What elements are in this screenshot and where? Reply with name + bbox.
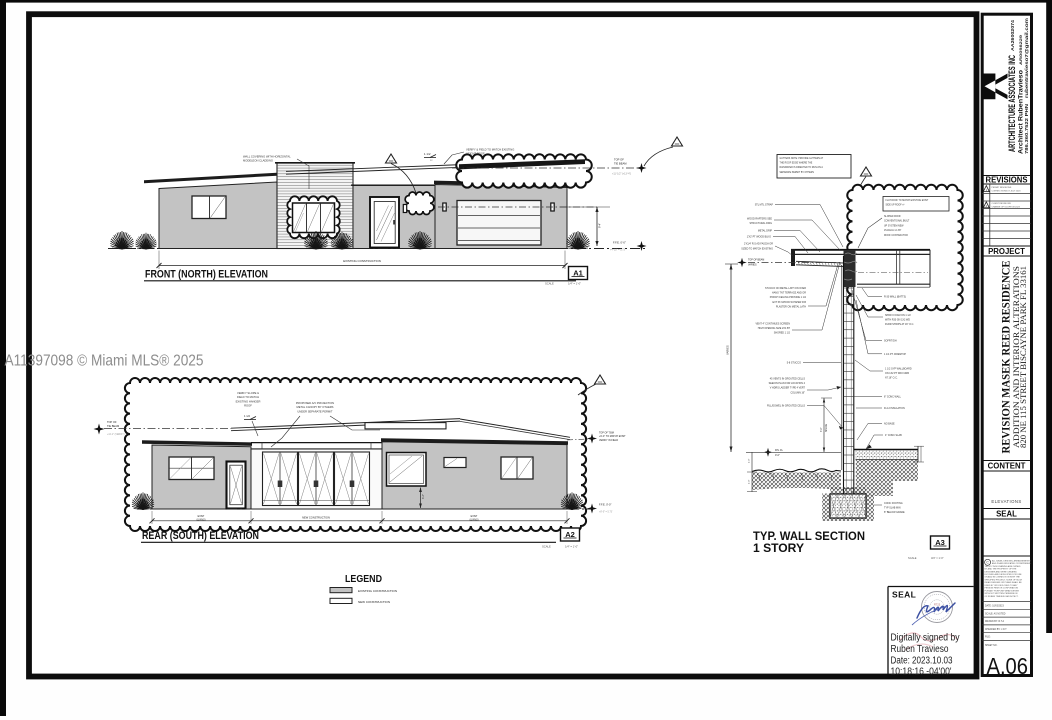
svg-text:ROOF: ROOF	[244, 404, 252, 408]
svg-text:SPLICE: SPLICE	[826, 423, 828, 432]
svg-text:1'-0": 1'-0"	[749, 458, 751, 463]
svg-text:BY AND THE PROPERTY OF THE: BY AND THE PROPERTY OF THE	[985, 568, 1018, 571]
svg-text:CHANGE OF SCOPE 08 2023: CHANGE OF SCOPE 08 2023	[992, 206, 1021, 209]
svg-text:METAL CANOPY BY OTHERS: METAL CANOPY BY OTHERS	[297, 405, 334, 409]
svg-text:RAINWATER IS DIRECTED TO RUN-O: RAINWATER IS DIRECTED TO RUN-ON A	[780, 166, 824, 169]
svg-text:(LIVING): (LIVING)	[196, 519, 205, 521]
svg-text:Digitally signed by: Digitally signed by	[891, 633, 960, 644]
svg-text:METAL DRIP: METAL DRIP	[758, 230, 772, 233]
svg-text:TIE BEAM: TIE BEAM	[614, 162, 627, 166]
svg-text:UNDER SEPARATE PERMIT: UNDER SEPARATE PERMIT	[297, 409, 332, 413]
svg-text:CHECKED BY: J.O.T: CHECKED BY: J.O.T	[985, 629, 1007, 631]
svg-text:WITH R30 ON 1X2 WD: WITH R30 ON 1X2 WD	[885, 319, 910, 322]
svg-text:HIGH OPENING SIZE 2X4 BT: HIGH OPENING SIZE 2X4 BT	[758, 327, 791, 330]
svg-text:GUTTERS NOTE: PROVIDE GUTTERS: GUTTERS NOTE: PROVIDE GUTTERS AT	[780, 157, 824, 160]
svg-text:CONC FOOTING: CONC FOOTING	[884, 502, 903, 505]
svg-text:VARIES: VARIES	[726, 345, 730, 355]
svg-text:WITHOUT WRITTEN PERMISSION: WITHOUT WRITTEN PERMISSION	[985, 593, 1018, 595]
svg-text:(LIVING): (LIVING)	[469, 519, 478, 521]
svg-text:NEW CONSTRUCTION: NEW CONSTRUCTION	[358, 600, 390, 604]
svg-text:A2: A2	[565, 530, 575, 539]
svg-text:ARTCHITECTURE ASSOCIATES INC: ARTCHITECTURE ASSOCIATES INC	[1007, 55, 1017, 152]
svg-text:STL MTL STRAP: STL MTL STRAP	[755, 204, 774, 207]
svg-text:FILL/DOWEL IN GROUTED CELLS: FILL/DOWEL IN GROUTED CELLS	[767, 405, 805, 408]
svg-text:USED BY OR DISCLOSED TO ANY: USED BY OR DISCLOSED TO ANY	[985, 584, 1019, 587]
svg-text:EXIST: EXIST	[471, 516, 478, 518]
svg-text:TOP OF: TOP OF	[614, 158, 624, 162]
svg-text:NO BASE: NO BASE	[884, 423, 895, 426]
svg-text:TOP OF T.BM: TOP OF T.BM	[599, 432, 614, 435]
svg-text:RT25: RT25	[934, 603, 941, 607]
svg-text:FRONT (NORTH) ELEVATION: FRONT (NORTH) ELEVATION	[145, 269, 268, 281]
svg-text:A.06: A.06	[987, 653, 1029, 679]
svg-text:3'-0": 3'-0"	[821, 427, 823, 432]
svg-text:820 NE 115 STREET BISCAYNE PAR: 820 NE 115 STREET BISCAYNE PARK FL 33161	[1019, 266, 1028, 448]
svg-text:1/4" = 1'-0": 1/4" = 1'-0"	[565, 545, 578, 549]
svg-text:10:18:16 -04'00': 10:18:16 -04'00'	[891, 667, 952, 678]
svg-text:SEAL: SEAL	[892, 590, 916, 600]
svg-text:REVISION MASEK REED RESIDENCE: REVISION MASEK REED RESIDENCE	[1001, 260, 1013, 453]
svg-text:A3: A3	[935, 538, 945, 547]
svg-text:VERIFY IN FIELD: VERIFY IN FIELD	[599, 439, 618, 442]
svg-text:FIN. FL: FIN. FL	[775, 449, 784, 452]
svg-text:TOP OF BEAM: TOP OF BEAM	[748, 259, 764, 262]
svg-text:SCALE: SCALE	[908, 556, 917, 560]
svg-text:FIELD TO MATCH: FIELD TO MATCH	[237, 395, 259, 399]
svg-text:4" CONC SLAB: 4" CONC SLAB	[885, 434, 902, 437]
svg-text:CONVENTIONAL BUILT: CONVENTIONAL BUILT	[884, 220, 910, 223]
svg-text:ON 1X2 PT WD FURR: ON 1X2 PT WD FURR	[885, 372, 909, 375]
svg-text:SIDE UP ROOF +/-: SIDE UP ROOF +/-	[886, 205, 906, 207]
svg-text:SEE/ON PLAN FOR LOCATION 4: SEE/ON PLAN FOR LOCATION 4	[769, 382, 806, 385]
svg-text:F.F.E. 0'-0": F.F.E. 0'-0"	[599, 503, 611, 507]
svg-text:+11'-1" (VERIFY): +11'-1" (VERIFY)	[107, 434, 125, 436]
svg-text:UP SYSTEM NEW: UP SYSTEM NEW	[884, 225, 904, 227]
svg-text:ALL IDEAS, DESIGNS, ARRANGEMEN: ALL IDEAS, DESIGNS, ARRANGEMENTS	[992, 559, 1032, 562]
svg-text:FOR ANY PURPOSE WHATSOEVER: FOR ANY PURPOSE WHATSOEVER	[985, 589, 1020, 592]
svg-text:SCALE: SCALE	[542, 545, 551, 549]
svg-text:EXISTING CONSTRUCTION: EXISTING CONSTRUCTION	[358, 589, 397, 593]
svg-text:TOP OF: TOP OF	[107, 420, 117, 424]
svg-text:R-30 WALL (BATTS): R-30 WALL (BATTS)	[884, 296, 906, 299]
svg-text:PERSON FIRM OR CORPORATION: PERSON FIRM OR CORPORATION	[985, 587, 1019, 590]
svg-text:CORRECTIONS 07 JULY 2023: CORRECTIONS 07 JULY 2023	[992, 191, 1022, 193]
svg-text:F.F.E. 0'-0": F.F.E. 0'-0"	[613, 241, 626, 245]
svg-text:9'-4": 9'-4"	[598, 223, 602, 228]
svg-text:VARIES: VARIES	[748, 264, 757, 267]
svg-text:1'-0": 1'-0"	[749, 479, 751, 484]
svg-text:PERMIT REVISIONS: PERMIT REVISIONS	[992, 187, 1012, 189]
svg-text:1 1/4 PT. FIRESTOP: 1 1/4 PT. FIRESTOP	[884, 353, 906, 356]
svg-text:EVOLVED AND DEVELOPED FOR USE: EVOLVED AND DEVELOPED FOR USE	[985, 573, 1023, 576]
svg-text:45 VENTS IN GROUTED CELLS: 45 VENTS IN GROUTED CELLS	[770, 378, 806, 381]
svg-text:Ruben Travieso: Ruben Travieso	[891, 644, 949, 655]
svg-text:AR0098229: AR0098229	[1018, 34, 1023, 65]
svg-text:5-8 STUCCO: 5-8 STUCCO	[787, 362, 801, 365]
svg-text:TYP. WALL SECTION: TYP. WALL SECTION	[753, 531, 865, 543]
svg-text:1 1/2 GYP WALLBOARD: 1 1/2 GYP WALLBOARD	[885, 368, 912, 371]
svg-text:EXISTING HANGER: EXISTING HANGER	[236, 399, 261, 403]
svg-text:LEGEND: LEGEND	[345, 574, 382, 585]
svg-text:Date: 2023.10.03: Date: 2023.10.03	[891, 656, 953, 667]
svg-text:PROJECT: PROJECT	[988, 247, 1025, 256]
svg-text:1/4" = 1'-0": 1/4" = 1'-0"	[568, 282, 581, 286]
svg-text:FURR STRIPS AT 16" O.C.: FURR STRIPS AT 16" O.C.	[885, 323, 914, 326]
svg-text:CLIENT REVISIONS: CLIENT REVISIONS	[992, 203, 1012, 205]
svg-text:EXISTING CONSTRUCTION: EXISTING CONSTRUCTION	[343, 259, 381, 263]
svg-text:0'-0": 0'-0"	[775, 454, 780, 457]
svg-text:TED BY THIS DRAWING ARE OWNED: TED BY THIS DRAWING ARE OWNED	[985, 565, 1022, 568]
svg-text:1 1/2: 1 1/2	[244, 414, 250, 418]
svg-text:VERIFY & FIELD TO MATCH EXISTI: VERIFY & FIELD TO MATCH EXISTING	[466, 148, 514, 152]
svg-text:ON AND IN CONNECTION WITH THE: ON AND IN CONNECTION WITH THE	[985, 576, 1021, 579]
svg-text:A1: A1	[573, 268, 583, 277]
svg-text:8" BELOW GRADE: 8" BELOW GRADE	[884, 511, 905, 514]
svg-text:NEW CONSTRUCTION: NEW CONSTRUCTION	[302, 515, 330, 519]
svg-text:R-4.2 INSULATION: R-4.2 INSULATION	[884, 407, 905, 410]
svg-text:THE ROOF EDGE WHERE THE: THE ROOF EDGE WHERE THE	[780, 163, 813, 165]
svg-text:STUCCO ON METAL LATH ON OVER: STUCCO ON METAL LATH ON OVER	[765, 287, 806, 290]
svg-text:SCALE: AS NOTED: SCALE: AS NOTED	[985, 612, 1006, 615]
svg-text:SHEET NO.: SHEET NO.	[985, 645, 998, 647]
svg-text:1'X2' PT WOOD BLKG: 1'X2' PT WOOD BLKG	[747, 235, 771, 238]
svg-text:A11397098 © Miami MLS® 2025: A11397098 © Miami MLS® 2025	[5, 353, 204, 370]
svg-text:2'X1/4' R.S AD FASCIA OR: 2'X1/4' R.S AD FASCIA OR	[744, 243, 773, 246]
svg-text:1 STORY: 1 STORY	[753, 543, 804, 555]
svg-text:+4'-10" = 5.73': +4'-10" = 5.73'	[610, 249, 626, 252]
svg-text:PLASTER ON METAL LATH: PLASTER ON METAL LATH	[776, 305, 806, 308]
svg-text:V HDRS LADDER TYPE 4 VERT: V HDRS LADDER TYPE 4 VERT	[770, 387, 806, 390]
svg-text:SHORED 1 1/2: SHORED 1 1/2	[774, 332, 791, 335]
svg-text:DESIGNER AND WERE CREATED: DESIGNER AND WERE CREATED	[985, 570, 1018, 573]
svg-text:15-DACA 1.1 BY: 15-DACA 1.1 BY	[884, 229, 902, 232]
svg-text:OF RUBEN TRAVIESO ARCHITECT.: OF RUBEN TRAVIESO ARCHITECT.	[985, 595, 1019, 598]
svg-text:CONTENT: CONTENT	[988, 462, 1026, 471]
svg-text:EXT PLYWOOD W PAPER R.B: EXT PLYWOOD W PAPER R.B	[773, 301, 807, 304]
svg-text:WALL COVERING WITH HORIZONTAL: WALL COVERING WITH HORIZONTAL	[243, 155, 291, 159]
svg-text:+8'-0" = 5.73': +8'-0" = 5.73'	[599, 512, 613, 514]
svg-text:WOOD RAFTERS SEE: WOOD RAFTERS SEE	[747, 218, 772, 221]
svg-text:ROOF CONTRACTOR: ROOF CONTRACTOR	[884, 234, 908, 237]
svg-text:ELEVATIONS: ELEVATIONS	[991, 499, 1021, 504]
svg-text:COLUMN 16": COLUMN 16"	[790, 391, 805, 394]
svg-text:+9'-4" TO MATCH EXIST: +9'-4" TO MATCH EXIST	[599, 435, 626, 438]
svg-text:AND PLANS INDICATED OR REPRESE: AND PLANS INDICATED OR REPRESEN-	[992, 562, 1032, 565]
svg-text:REVISIONS: REVISIONS	[986, 176, 1028, 185]
svg-text:+11'-1/2" (+13'-4"): +11'-1/2" (+13'-4")	[612, 173, 631, 176]
svg-text:AA26002074: AA26002074	[1010, 19, 1015, 51]
svg-text:8" CONC WALL: 8" CONC WALL	[884, 396, 902, 399]
svg-text:STRUCTURAL DWG: STRUCTURAL DWG	[750, 222, 773, 225]
svg-text:SIZED TO MATCH EXISTING: SIZED TO MATCH EXISTING	[741, 247, 773, 250]
svg-text:SPRAY FOAM ON 1 1/2: SPRAY FOAM ON 1 1/2	[885, 314, 911, 317]
svg-text:1 1/2: 1 1/2	[424, 152, 431, 156]
svg-text:SLOPED ROOF: SLOPED ROOF	[884, 216, 901, 218]
svg-text:SEAL: SEAL	[996, 510, 1017, 519]
svg-text:3/4" = 1'-0": 3/4" = 1'-0"	[931, 556, 944, 560]
svg-text:REAR (SOUTH) ELEVATION: REAR (SOUTH) ELEVATION	[142, 530, 259, 542]
svg-text:HEIGHT ROOF: HEIGHT ROOF	[466, 152, 485, 156]
svg-text:3'-4": 3'-4"	[422, 494, 425, 499]
svg-text:SCALE: SCALE	[545, 282, 554, 286]
svg-text:MODELEON CLADDING: MODELEON CLADDING	[243, 159, 273, 163]
svg-text:FLAT ROOF TO MATCH EXISTING EX: FLAT ROOF TO MATCH EXISTING EXIST	[886, 199, 929, 202]
svg-text:DRAWN BY: R.T.A: DRAWN BY: R.T.A	[985, 620, 1005, 623]
svg-text:rubentravieso7@gmail.com: rubentravieso7@gmail.com	[1024, 18, 1029, 98]
svg-text:VERIFY SLOPE &: VERIFY SLOPE &	[237, 391, 259, 395]
svg-text:AT 16" O.C.: AT 16" O.C.	[885, 377, 898, 380]
svg-text:DATE: 10/03/2023: DATE: 10/03/2023	[985, 605, 1004, 608]
svg-text:EXIST: EXIST	[198, 516, 205, 518]
svg-text:FILE:: FILE:	[985, 637, 991, 639]
svg-text:SPECIFIED PROJECT. NONE OF SUC: SPECIFIED PROJECT. NONE OF SUCH	[985, 579, 1023, 581]
svg-text:VENT 4" CONTINUES SCREEN: VENT 4" CONTINUES SCREEN	[755, 323, 790, 326]
svg-text:HANG TNT TERRACE AND OR: HANG TNT TERRACE AND OR	[772, 292, 806, 295]
svg-text:SOFFIT/DH: SOFFIT/DH	[884, 340, 897, 343]
svg-text:IDEAS DESIGNS OR PLANS SHALL B: IDEAS DESIGNS OR PLANS SHALL BE	[985, 581, 1023, 584]
svg-text:PROPOSED A/V PROJECTION: PROPOSED A/V PROJECTION	[296, 401, 334, 405]
svg-text:786.360.7522 PHN: 786.360.7522 PHN	[1024, 104, 1029, 154]
svg-text:SEPARATE PERMIT BY OTHERS: SEPARATE PERMIT BY OTHERS	[780, 171, 815, 174]
svg-text:PORCH CEILING PROVIDE 1 1/2: PORCH CEILING PROVIDE 1 1/2	[770, 296, 807, 299]
svg-text:TYP SLAB MIN: TYP SLAB MIN	[884, 507, 901, 510]
svg-text:TIE BEAM: TIE BEAM	[107, 424, 119, 428]
